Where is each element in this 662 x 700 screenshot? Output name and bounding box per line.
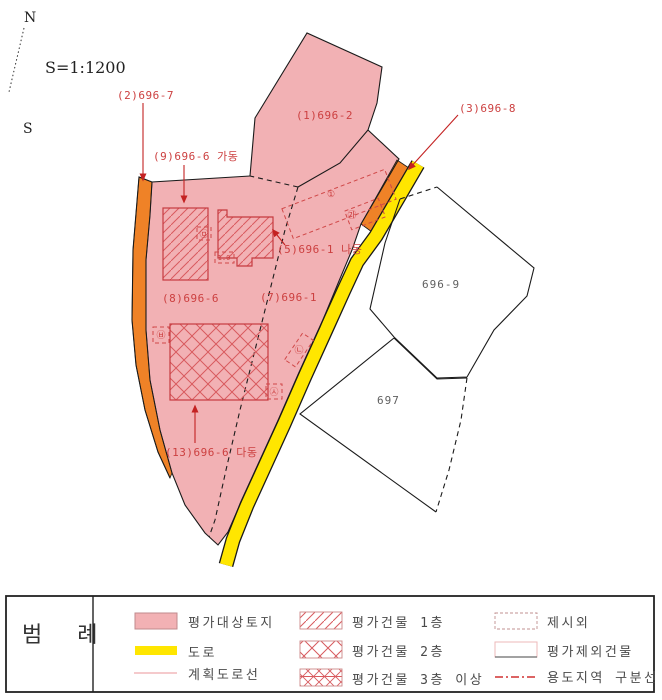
label-696-8: (3)696-8 <box>459 102 516 115</box>
legend-swatch-road <box>135 646 177 655</box>
label-696-1-na: (5)696-1 나동 <box>277 243 362 256</box>
south-label: S <box>23 121 33 137</box>
label-696-6-da: (13)696-6 다동 <box>165 446 257 459</box>
legend-swatch-bldg2f <box>300 641 342 658</box>
legend-label-planned-road-line: 계획도로선 <box>188 668 260 683</box>
legend-swatch-bldg3f <box>300 669 342 686</box>
legend-swatch-unreported <box>495 613 537 629</box>
label-696-7: (2)696-7 <box>117 89 174 102</box>
marker-m7: ㉡ <box>294 345 303 356</box>
marker-m3: ① <box>327 190 335 200</box>
label-696-9: 696-9 <box>422 278 460 291</box>
legend-swatch-excluded-bldg <box>495 642 537 657</box>
legend-swatch-bldg1f <box>300 612 342 629</box>
building-da-2f <box>170 324 268 400</box>
label-696-6: (8)696-6 <box>162 292 219 305</box>
legend-label-zoning-line: 용도지역 구분선 <box>547 671 659 686</box>
map-canvas: N S S=1:1200 <box>0 0 662 700</box>
label-696-2: (1)696-2 <box>296 109 353 122</box>
marker-m6: ㉦ <box>269 387 278 398</box>
legend-label-target-land: 평가대상토지 <box>188 616 275 631</box>
legend-label-bldg1f: 평가건물 1층 <box>352 616 445 631</box>
legend: 범 례 평가대상토지 도로 계획도로선 평가건물 1층 평가건물 2층 평가건물… <box>6 596 659 692</box>
legend-label-road: 도로 <box>188 646 217 661</box>
legend-title: 범 례 <box>22 623 111 648</box>
map-scale-text: S=1:1200 <box>45 58 126 77</box>
label-696-6-ga: (9)696-6 가동 <box>153 150 238 163</box>
label-696-1: (7)696-1 <box>260 291 317 304</box>
marker-m4: ㉮ <box>347 210 356 221</box>
marker-m5: ㉥ <box>156 330 165 341</box>
building-ga-1f <box>163 208 208 280</box>
legend-label-bldg3f: 평가건물 3층 이상 <box>352 673 484 688</box>
legend-swatch-target-land <box>135 613 177 629</box>
legend-label-bldg2f: 평가건물 2층 <box>352 645 445 660</box>
legend-label-excluded-bldg: 평가제외건물 <box>547 645 634 660</box>
appraisal-map-page: N S S=1:1200 <box>0 0 662 700</box>
label-697: 697 <box>377 394 400 407</box>
legend-label-unreported: 제시외 <box>547 616 590 631</box>
marker-m1: ㉤ <box>199 229 208 240</box>
north-label: N <box>24 10 36 26</box>
marker-m2: 1.0 <box>218 254 231 262</box>
